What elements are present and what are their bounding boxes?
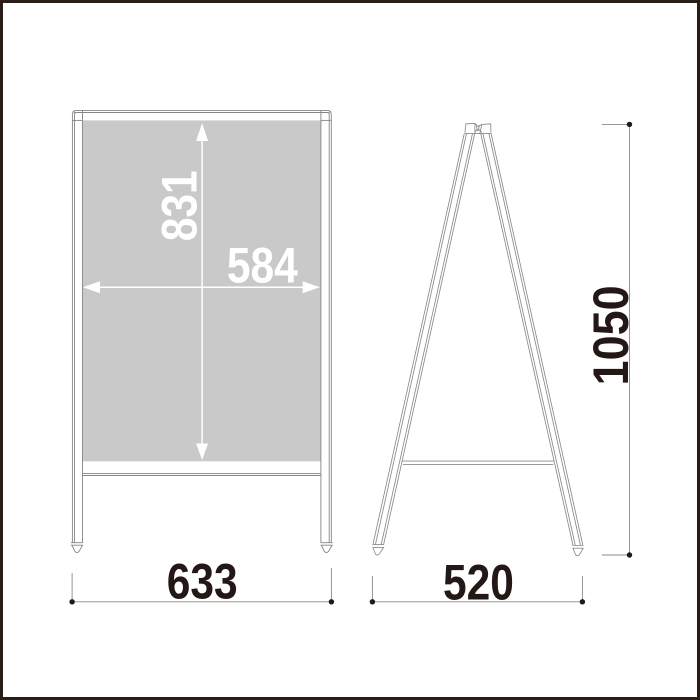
svg-text:831: 831 [151,170,207,241]
svg-text:520: 520 [443,554,514,610]
svg-text:584: 584 [227,237,298,293]
svg-text:633: 633 [167,553,238,609]
svg-text:1050: 1050 [584,285,640,385]
